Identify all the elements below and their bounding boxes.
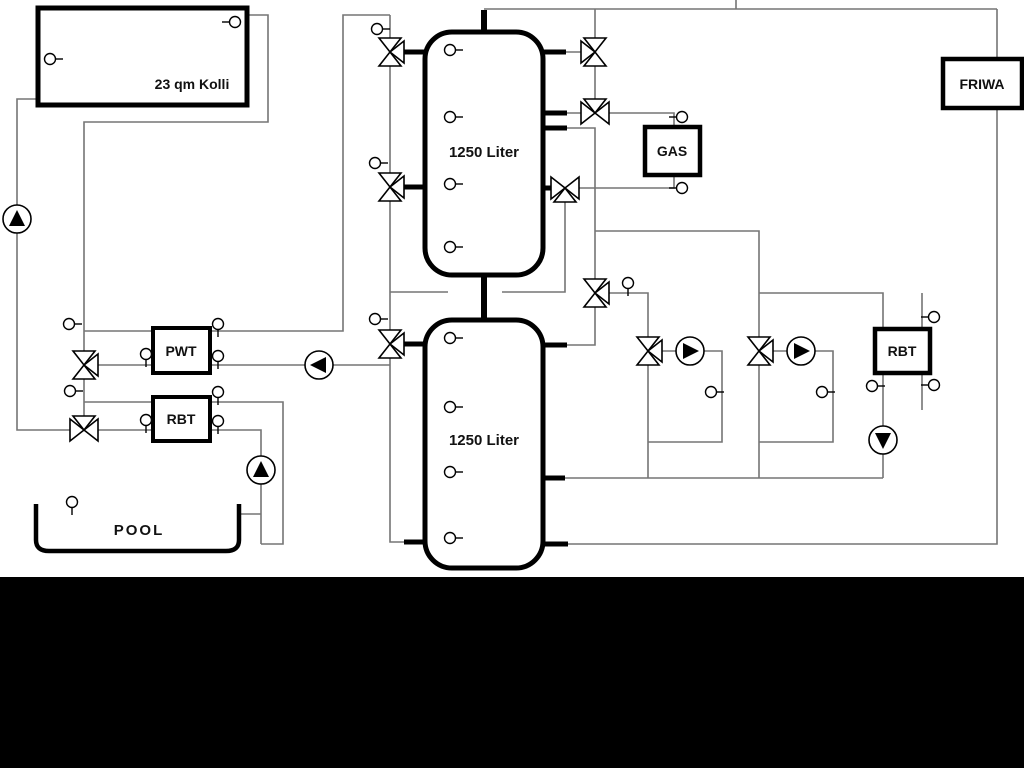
pump-icon [787, 337, 815, 365]
hydraulic-schematic: 23 qm Kolli 1250 Liter 1250 Liter PWT RB… [0, 0, 1024, 768]
pump-icon [676, 337, 704, 365]
pool-label: POOL [114, 522, 165, 539]
pump-icon [305, 351, 333, 379]
pwt-label: PWT [165, 343, 197, 359]
pump-icon [869, 426, 897, 454]
friwa-label: FRIWA [959, 76, 1004, 92]
bottom-letterbox-bar [0, 577, 1024, 768]
rbt-right-label: RBT [888, 343, 917, 359]
gas-label: GAS [657, 143, 687, 159]
pump-icon [247, 456, 275, 484]
rbt-left-label: RBT [167, 411, 196, 427]
upper-tank-label: 1250 Liter [449, 144, 519, 161]
collector-label: 23 qm Kolli [155, 76, 230, 92]
schematic-screenshot: 23 qm Kolli 1250 Liter 1250 Liter PWT RB… [0, 0, 1024, 768]
pump-icon [3, 205, 31, 233]
lower-tank-label: 1250 Liter [449, 432, 519, 449]
